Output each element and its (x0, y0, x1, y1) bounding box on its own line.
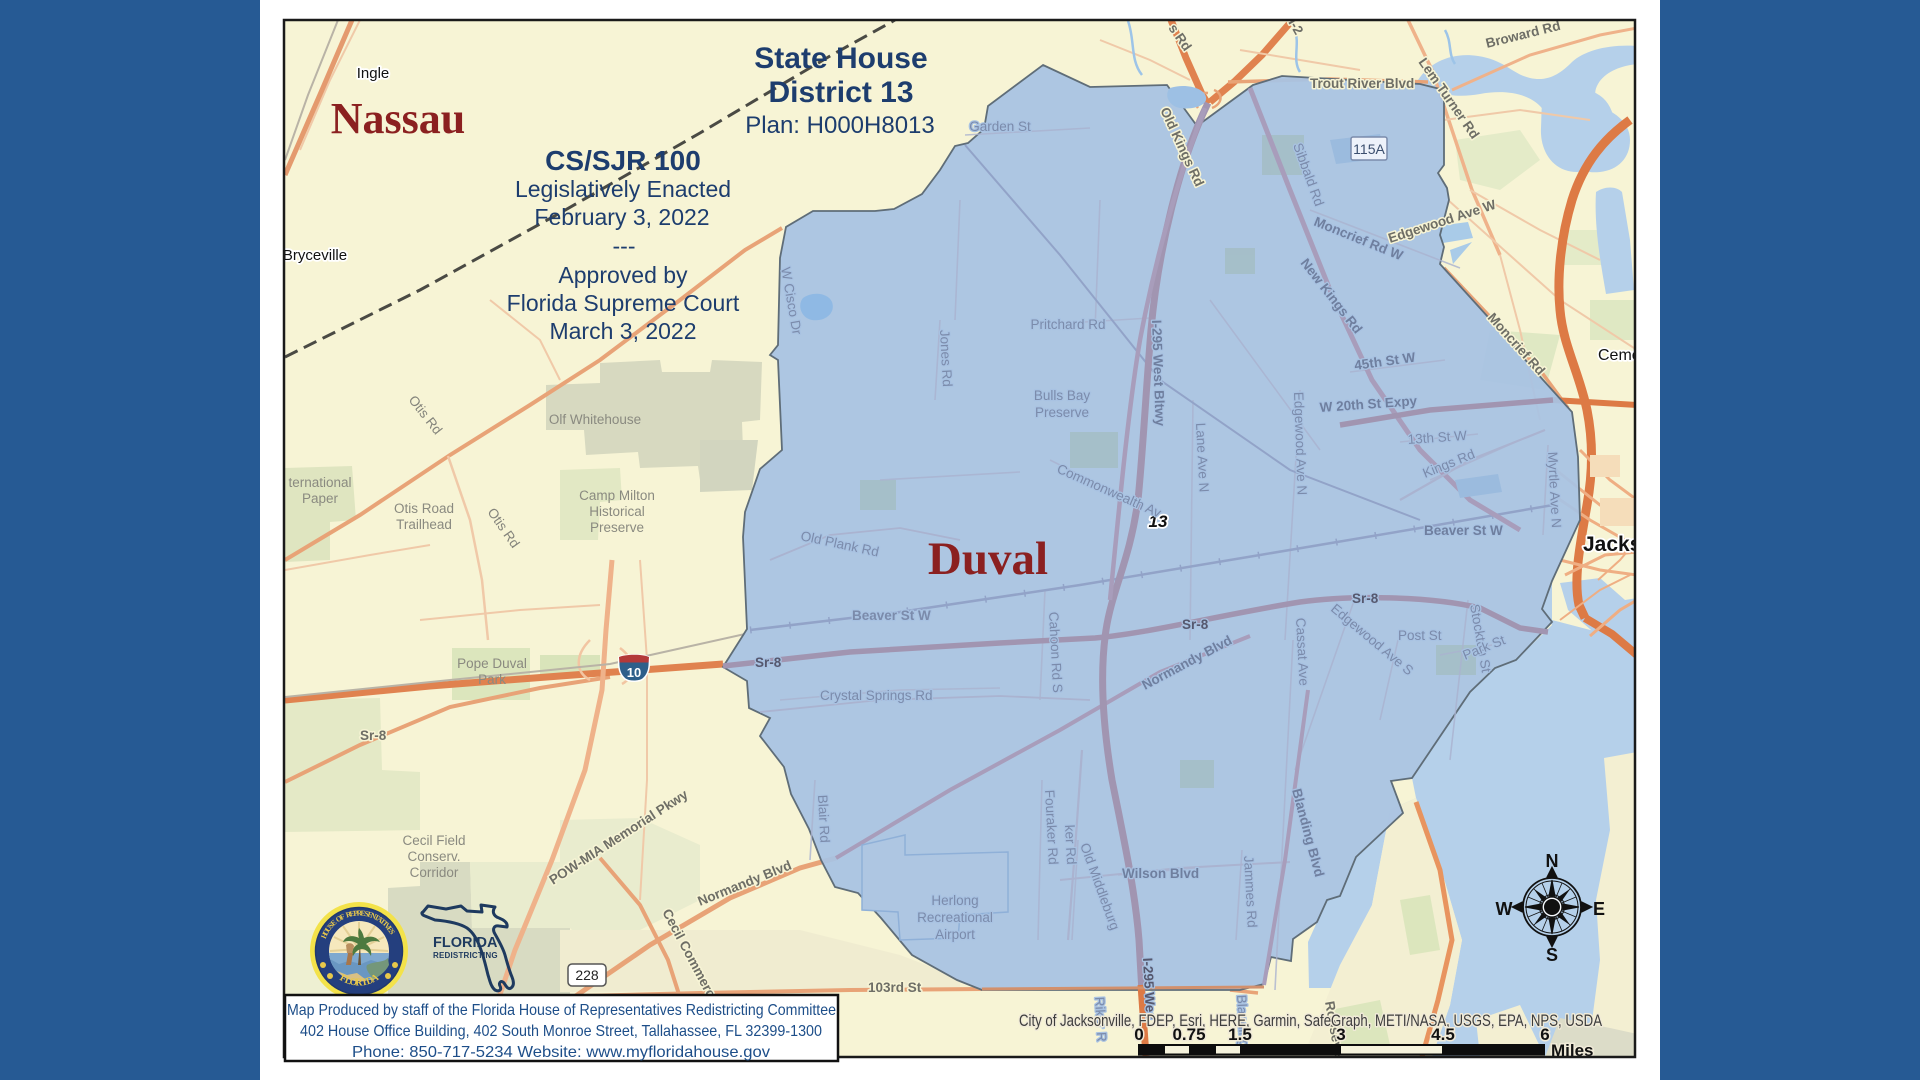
svg-text:Camp Milton: Camp Milton (579, 488, 655, 503)
svg-text:10: 10 (627, 665, 641, 680)
svg-text:Map Produced by staff of the F: Map Produced by staff of the Florida Hou… (287, 1002, 836, 1019)
svg-text:February 3, 2022: February 3, 2022 (534, 204, 709, 230)
svg-text:0: 0 (1134, 1025, 1143, 1044)
svg-text:Post St: Post St (1398, 628, 1442, 643)
svg-text:March 3, 2022: March 3, 2022 (549, 318, 696, 344)
svg-text:Blair Rd: Blair Rd (815, 794, 832, 843)
svg-text:Legislatively Enacted: Legislatively Enacted (515, 176, 731, 202)
svg-text:Wilson Blvd: Wilson Blvd (1122, 866, 1199, 881)
svg-text:Airport: Airport (935, 927, 975, 942)
svg-text:Recreational: Recreational (917, 910, 993, 925)
svg-text:Park: Park (478, 672, 506, 687)
svg-text:Jacks: Jacks (1583, 533, 1641, 556)
svg-text:0.75: 0.75 (1172, 1025, 1205, 1044)
svg-text:Preserve: Preserve (590, 520, 644, 535)
svg-text:Sr-8: Sr-8 (755, 655, 782, 670)
svg-text:Nassau: Nassau (331, 94, 466, 143)
svg-text:115A: 115A (1353, 141, 1385, 157)
svg-text:Garden St: Garden St (969, 119, 1031, 134)
svg-text:REDISTRICTING: REDISTRICTING (433, 951, 498, 960)
svg-text:Beaver St W: Beaver St W (852, 608, 931, 623)
svg-text:4.5: 4.5 (1431, 1025, 1455, 1044)
svg-text:Bryceville: Bryceville (283, 247, 347, 264)
svg-text:---: --- (613, 233, 636, 259)
svg-text:State House: State House (754, 42, 927, 75)
svg-text:Trailhead: Trailhead (396, 517, 452, 532)
svg-text:402 House Office Building, 402: 402 House Office Building, 402 South Mon… (300, 1023, 822, 1040)
svg-text:E: E (1593, 899, 1605, 919)
svg-text:103rd St: 103rd St (868, 980, 922, 995)
svg-text:Pope Duval: Pope Duval (457, 656, 527, 671)
svg-text:Historical: Historical (589, 504, 645, 519)
svg-text:Paper: Paper (302, 491, 339, 506)
svg-text:Beaver St W: Beaver St W (1424, 523, 1503, 538)
svg-text:Corridor: Corridor (410, 865, 459, 880)
svg-text:Ingle: Ingle (357, 65, 390, 82)
svg-text:CS/SJR 100: CS/SJR 100 (545, 145, 701, 176)
svg-text:District 13: District 13 (768, 76, 913, 109)
svg-text:Sr-8: Sr-8 (1352, 591, 1379, 606)
svg-text:Conserv.: Conserv. (407, 849, 460, 864)
svg-text:S: S (1546, 945, 1558, 965)
svg-text:Cecil Field: Cecil Field (402, 833, 465, 848)
svg-text:W: W (1496, 899, 1513, 919)
svg-text:FLORIDA: FLORIDA (433, 935, 498, 951)
svg-text:Otis Road: Otis Road (394, 501, 454, 516)
svg-text:Olf Whitehouse: Olf Whitehouse (549, 412, 641, 427)
svg-text:Duval: Duval (928, 533, 1048, 585)
svg-text:Approved by: Approved by (558, 262, 688, 288)
svg-text:Sr-8: Sr-8 (1182, 617, 1209, 632)
svg-text:3: 3 (1336, 1025, 1345, 1044)
svg-text:ker Rd: ker Rd (1062, 824, 1079, 864)
svg-text:N: N (1546, 851, 1559, 871)
svg-text:228: 228 (575, 967, 599, 983)
svg-text:Plan: H000H8013: Plan: H000H8013 (745, 112, 934, 139)
svg-text:City of Jacksonville, FDEP, Es: City of Jacksonville, FDEP, Esri, HERE, … (1019, 1012, 1602, 1030)
svg-text:Crystal Springs Rd: Crystal Springs Rd (820, 688, 933, 703)
svg-text:Preserve: Preserve (1035, 405, 1089, 420)
svg-text:1.5: 1.5 (1228, 1025, 1252, 1044)
svg-text:Trout River Blvd: Trout River Blvd (1310, 76, 1414, 91)
svg-text:Jones Rd: Jones Rd (937, 329, 955, 387)
svg-text:Florida Supreme Court: Florida Supreme Court (507, 290, 740, 316)
svg-text:6: 6 (1540, 1025, 1549, 1044)
svg-text:Pritchard Rd: Pritchard Rd (1030, 317, 1105, 332)
svg-text:Herlong: Herlong (931, 893, 978, 908)
svg-text:Sr-8: Sr-8 (360, 728, 387, 743)
svg-text:Bulls Bay: Bulls Bay (1034, 388, 1091, 403)
svg-text:Phone: 850-717-5234 Website: w: Phone: 850-717-5234 Website: www.myflori… (352, 1044, 770, 1061)
svg-text:ternational: ternational (288, 475, 351, 490)
